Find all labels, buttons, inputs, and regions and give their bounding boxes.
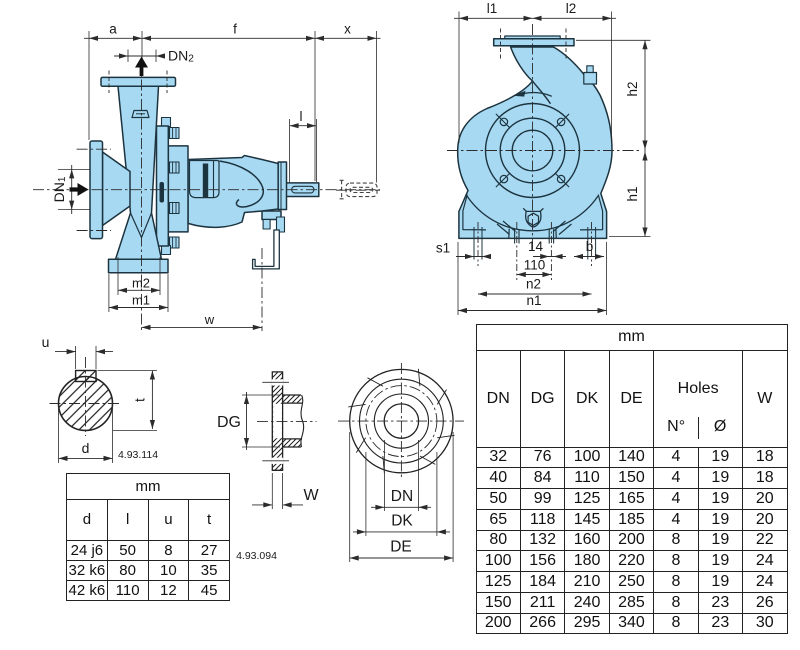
svg-text:l1: l1 [487, 1, 498, 16]
svg-text:W: W [303, 487, 319, 504]
svg-text:14: 14 [528, 239, 544, 254]
svg-text:m1: m1 [132, 292, 150, 307]
svg-text:n1: n1 [526, 293, 541, 308]
svg-text:m2: m2 [132, 275, 150, 290]
svg-text:d: d [82, 440, 90, 456]
svg-text:4.93.094: 4.93.094 [236, 550, 277, 562]
svg-text:DG: DG [217, 414, 241, 431]
svg-text:n2: n2 [526, 277, 541, 292]
svg-text:4.93.114: 4.93.114 [118, 449, 158, 461]
svg-text:f: f [233, 22, 237, 37]
svg-text:110: 110 [524, 258, 546, 273]
svg-text:DK: DK [391, 513, 413, 530]
svg-text:a: a [109, 22, 117, 37]
svg-text:DN: DN [391, 488, 413, 505]
svg-text:h1: h1 [625, 186, 640, 201]
svg-text:t: t [132, 398, 148, 402]
svg-text:u: u [42, 334, 50, 350]
svg-text:DE: DE [390, 539, 412, 556]
svg-text:l: l [300, 109, 303, 124]
svg-text:w: w [204, 312, 215, 327]
svg-text:x: x [344, 22, 351, 37]
svg-text:DN2: DN2 [168, 48, 194, 65]
svg-text:h2: h2 [625, 81, 640, 96]
svg-text:b: b [586, 239, 594, 254]
svg-text:l2: l2 [566, 1, 577, 16]
svg-text:DN1: DN1 [51, 176, 68, 202]
svg-text:s1: s1 [436, 241, 450, 256]
